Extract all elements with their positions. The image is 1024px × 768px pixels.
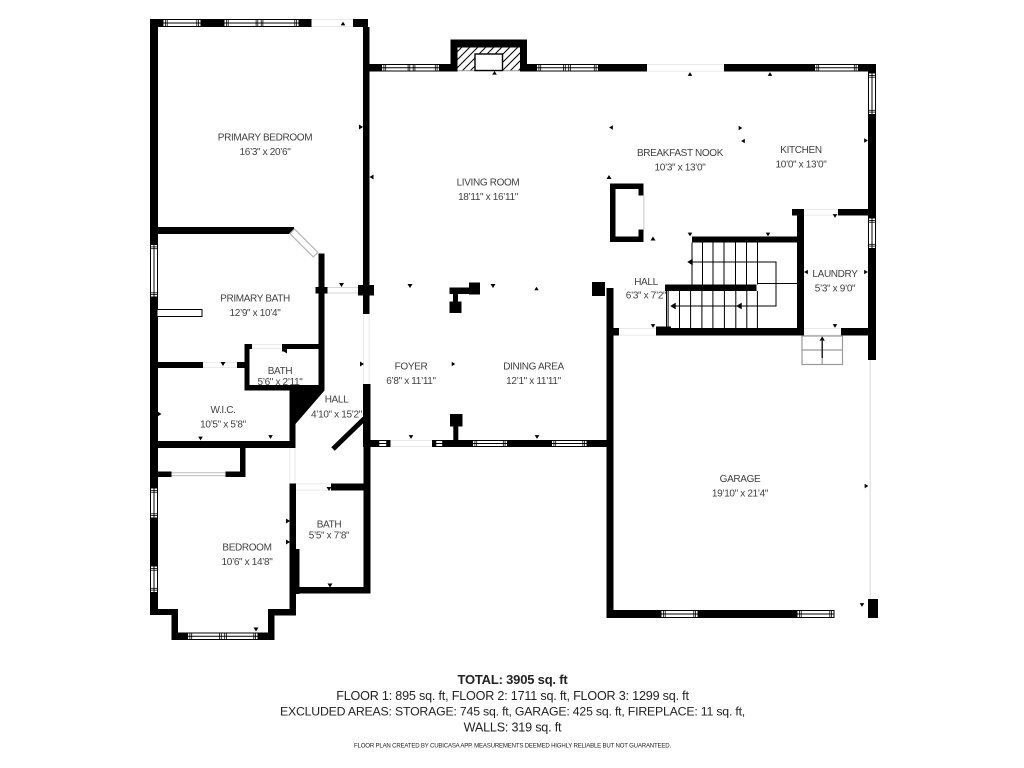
svg-text:12’1" x 11’11": 12’1" x 11’11" [506,376,561,387]
svg-text:12’9" x 10’4": 12’9" x 10’4" [230,308,282,319]
svg-text:EXCLUDED AREAS: STORAGE: 745 s: EXCLUDED AREAS: STORAGE: 745 sq. ft, GAR… [280,705,745,719]
svg-text:FLOOR PLAN CREATED BY CUBICASA: FLOOR PLAN CREATED BY CUBICASA APP. MEAS… [354,743,671,750]
svg-text:HALL: HALL [325,395,349,406]
svg-text:5’6" x 2’11": 5’6" x 2’11" [258,377,304,388]
svg-text:BATH: BATH [268,366,293,377]
svg-text:19’10" x 21’4": 19’10" x 21’4" [712,489,769,500]
svg-text:GARAGE: GARAGE [720,474,761,485]
svg-text:PRIMARY BEDROOM: PRIMARY BEDROOM [218,133,312,144]
svg-text:WALLS: 319 sq. ft: WALLS: 319 sq. ft [464,721,562,735]
svg-text:KITCHEN: KITCHEN [780,145,822,156]
svg-text:5’3" x 9’0": 5’3" x 9’0" [815,284,856,295]
svg-text:4’10" x 15’2": 4’10" x 15’2" [311,410,363,421]
svg-text:W.I.C.: W.I.C. [210,405,235,416]
svg-text:5’5" x 7’8": 5’5" x 7’8" [309,531,350,542]
svg-text:18’11" x 16’11": 18’11" x 16’11" [458,192,519,203]
svg-text:LIVING ROOM: LIVING ROOM [457,178,520,189]
svg-text:BREAKFAST NOOK: BREAKFAST NOOK [637,148,724,159]
svg-text:10’5" x 5’8": 10’5" x 5’8" [200,420,247,431]
svg-text:16’3" x 20’6": 16’3" x 20’6" [240,147,292,158]
svg-text:HALL: HALL [634,277,658,288]
svg-text:6’8" x 11’11": 6’8" x 11’11" [386,376,436,387]
svg-text:DINING AREA: DINING AREA [503,362,564,373]
svg-text:FLOOR 1: 895 sq. ft, FLOOR 2:: FLOOR 1: 895 sq. ft, FLOOR 2: 1711 sq. f… [336,689,689,703]
svg-text:10’0" x 13’0": 10’0" x 13’0" [776,160,828,171]
svg-text:6’3" x 7’2": 6’3" x 7’2" [626,291,667,302]
svg-text:10’3" x 13’0": 10’3" x 13’0" [655,163,707,174]
svg-text:LAUNDRY: LAUNDRY [812,269,858,280]
svg-text:TOTAL: 3905 sq. ft: TOTAL: 3905 sq. ft [457,672,568,687]
svg-text:PRIMARY BATH: PRIMARY BATH [220,294,290,305]
svg-text:BATH: BATH [317,520,342,531]
svg-text:FOYER: FOYER [395,362,428,373]
svg-text:BEDROOM: BEDROOM [222,543,271,554]
svg-text:10’6" x 14’8": 10’6" x 14’8" [222,557,274,568]
